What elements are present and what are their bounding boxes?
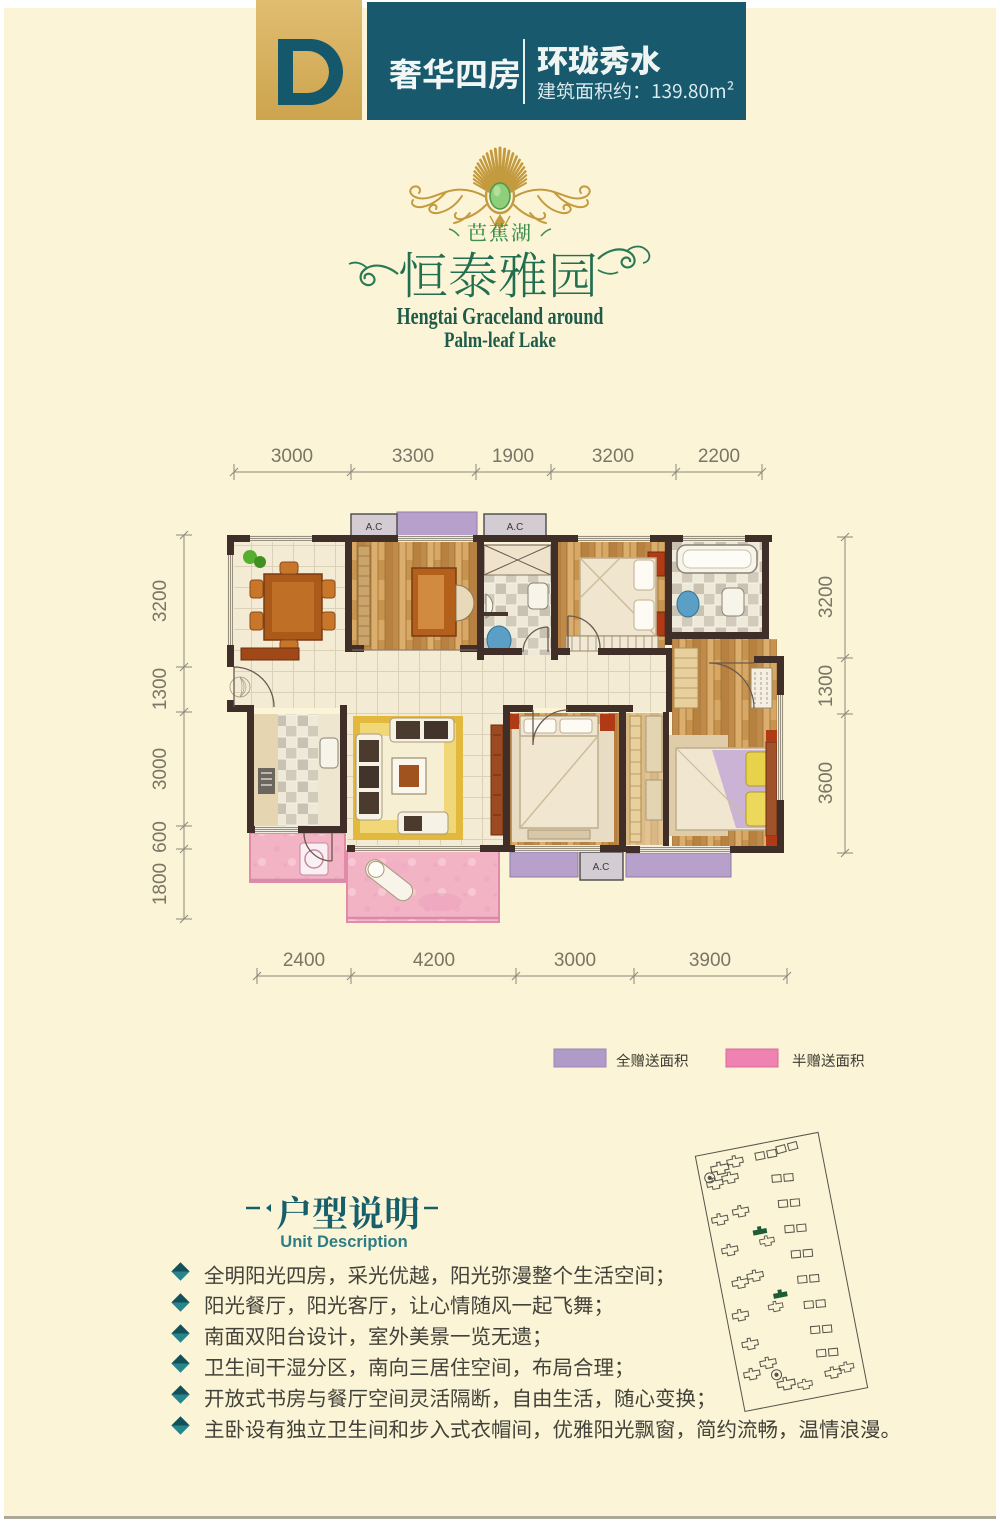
svg-text:3600: 3600 — [816, 762, 837, 804]
svg-text:1800: 1800 — [150, 863, 171, 905]
svg-text:A.C: A.C — [593, 862, 610, 873]
svg-text:3200: 3200 — [592, 446, 634, 467]
svg-text:3200: 3200 — [816, 576, 837, 618]
svg-text:3200: 3200 — [150, 580, 171, 622]
svg-text:600: 600 — [150, 821, 171, 853]
svg-text:1300: 1300 — [150, 668, 171, 710]
svg-text:1900: 1900 — [492, 446, 534, 467]
svg-text:3000: 3000 — [150, 748, 171, 790]
svg-text:3000: 3000 — [271, 446, 313, 467]
svg-text:1300: 1300 — [816, 665, 837, 707]
svg-text:2200: 2200 — [698, 446, 740, 467]
svg-text:A.C: A.C — [507, 522, 524, 533]
svg-text:2400: 2400 — [283, 950, 325, 971]
svg-text:3000: 3000 — [554, 950, 596, 971]
svg-text:3900: 3900 — [689, 950, 731, 971]
svg-text:3300: 3300 — [392, 446, 434, 467]
svg-text:A.C: A.C — [366, 522, 383, 533]
svg-text:4200: 4200 — [413, 950, 455, 971]
